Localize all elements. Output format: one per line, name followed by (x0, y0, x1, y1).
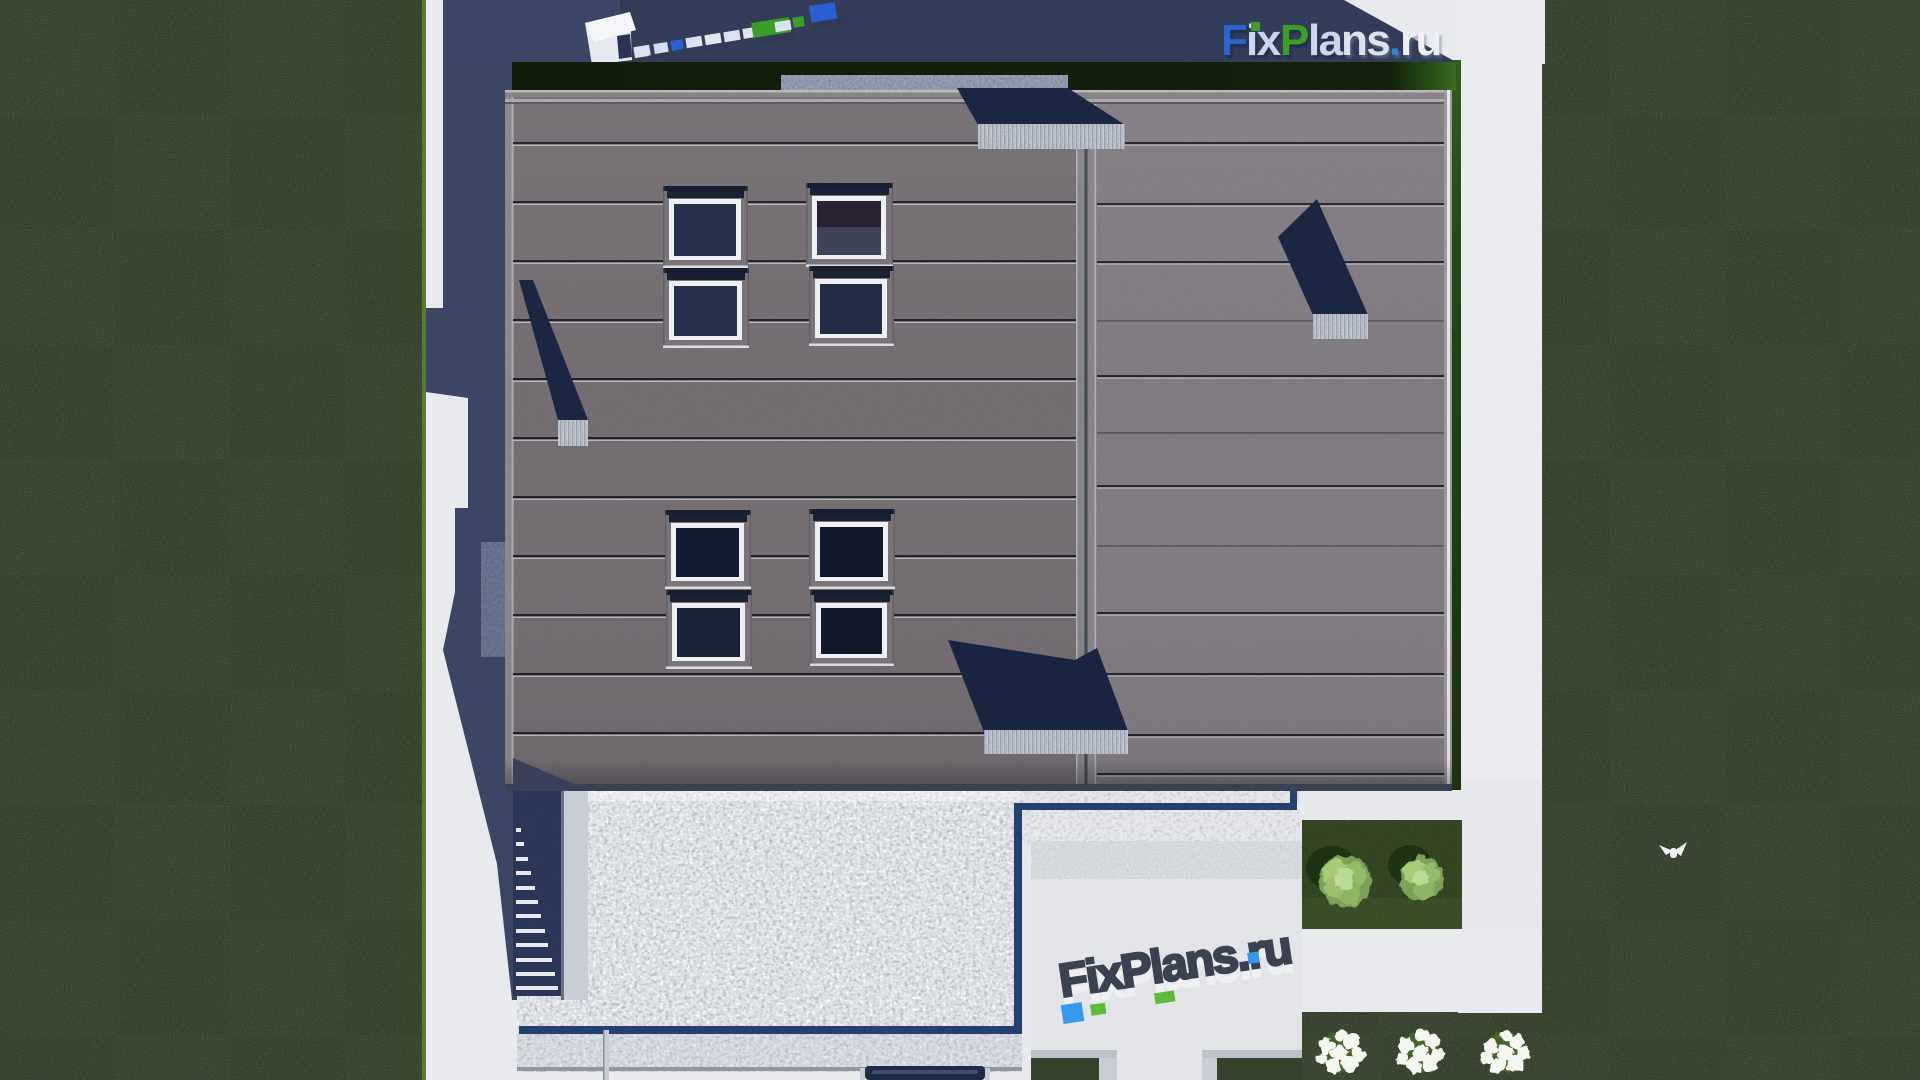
svg-text:ns: ns (1341, 16, 1389, 65)
svg-text:la: la (1308, 16, 1344, 65)
svg-text:ru: ru (1400, 16, 1441, 65)
svg-text:P: P (1280, 16, 1308, 65)
svg-text:F: F (1221, 16, 1247, 65)
svg-text:.: . (1389, 16, 1400, 65)
